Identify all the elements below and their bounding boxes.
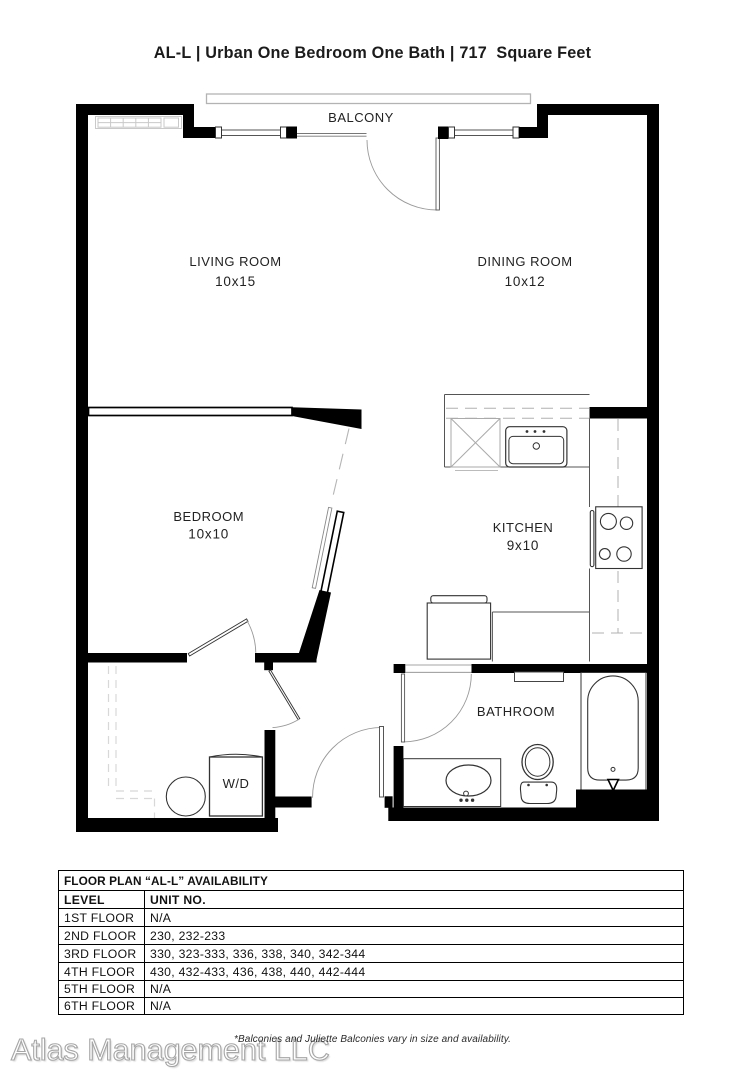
svg-text:10x12: 10x12: [505, 274, 546, 289]
svg-text:10x10: 10x10: [188, 527, 229, 542]
svg-text:BATHROOM: BATHROOM: [477, 704, 555, 719]
svg-text:W/D: W/D: [223, 776, 250, 791]
svg-text:9x10: 9x10: [507, 538, 539, 553]
svg-text:10x15: 10x15: [215, 274, 256, 289]
svg-text:DINING ROOM: DINING ROOM: [477, 254, 572, 269]
svg-text:BALCONY: BALCONY: [328, 110, 394, 125]
svg-text:KITCHEN: KITCHEN: [493, 520, 554, 535]
svg-text:BEDROOM: BEDROOM: [173, 509, 244, 524]
svg-text:LIVING ROOM: LIVING ROOM: [189, 254, 281, 269]
